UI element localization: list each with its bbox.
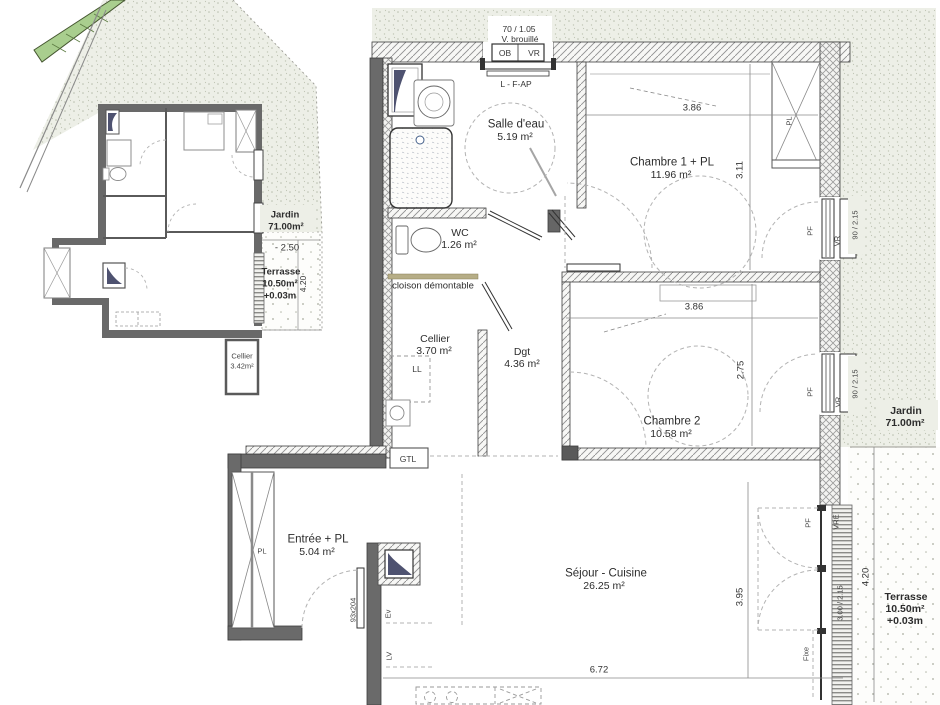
top-window-ob: OB (499, 49, 511, 58)
site-apartment-walls (52, 104, 262, 338)
site-jardin-area: 71.00m² (268, 222, 303, 232)
exterior-terrasse-area: 10.50m² (885, 604, 924, 615)
dishwasher-label: LV (385, 652, 393, 661)
door-size-label: 93x204 (349, 598, 357, 623)
room-label-wc: WC (451, 228, 469, 239)
dim-sejour-depth: 3.95 (735, 588, 745, 607)
win2-dim-label: 90 / 2.15 (851, 369, 859, 398)
kitchen-units (416, 687, 541, 704)
cloison-demontable-label: cloison démontable (392, 281, 474, 291)
ll-zone (390, 356, 430, 402)
main-plan (228, 8, 940, 705)
win2-pf-label: PF (806, 387, 814, 397)
site-jardin-name: Jardin (271, 210, 300, 220)
dim-chambre2-width: 3.86 (685, 302, 704, 312)
floor-plan-drawing (0, 0, 940, 705)
site-level-dim: - 2.50 (275, 243, 299, 253)
room-label-salle-eau: Salle d'eau (488, 119, 545, 131)
exterior-terrasse-name: Terrasse (884, 592, 927, 603)
site-cellier-area: 3.42m² (230, 362, 253, 370)
bay-vre-label: VRE (832, 514, 840, 529)
room-label-sejour: Séjour - Cuisine (565, 568, 647, 580)
dim-chambre1-width: 3.86 (683, 103, 702, 113)
room-label-cellier: Cellier (420, 334, 450, 345)
room-area-chambre2: 10.58 m² (650, 429, 691, 440)
closet-label-entree: PL (257, 547, 266, 555)
exterior-jardin-area: 71.00m² (885, 418, 924, 429)
top-window-vr: VR (528, 49, 540, 58)
bay-dim-label: 3.00 / 2.15 (836, 585, 844, 620)
washer-label: LL (412, 365, 421, 374)
site-plan (20, 0, 322, 394)
wc-tank (396, 226, 408, 254)
fixe-label: Fixe (802, 647, 810, 661)
site-terrasse-name: Terrasse (262, 267, 301, 277)
win2-vr-label: VR (834, 397, 842, 407)
exterior-terrasse-level: +0.03m (887, 616, 923, 627)
top-window-under: L - F-AP (500, 80, 531, 89)
dim-chambre1-depth: 3.11 (735, 161, 745, 179)
walls (228, 42, 850, 705)
site-terrasse-level: +0.03m (264, 291, 297, 301)
room-area-cellier: 3.70 m² (416, 346, 452, 357)
dim-sejour-width: 6.72 (590, 665, 609, 675)
win1-dim-label: 90 / 2.15 (851, 210, 859, 239)
fixtures (232, 62, 820, 704)
washbasin (418, 86, 450, 118)
room-area-dgt: 4.36 m² (504, 359, 540, 370)
dim-chambre2-depth: 2.75 (736, 361, 746, 380)
gtl-label: GTL (400, 455, 417, 464)
wc-toilet (411, 228, 441, 252)
sink-label: Ev (384, 610, 392, 619)
floor-plan-canvas: Jardin 71.00m² - 2.50 Terrasse 10.50m² +… (0, 0, 940, 705)
room-area-salle-eau: 5.19 m² (497, 132, 533, 143)
room-area-chambre1: 11.96 m² (651, 170, 692, 181)
site-terrasse-area: 10.50m² (262, 279, 297, 289)
top-window-dim: 70 / 1.05 (502, 25, 535, 34)
site-cellier-name: Cellier (231, 352, 252, 360)
room-area-wc: 1.26 m² (441, 240, 477, 251)
room-label-chambre1: Chambre 1 + PL (630, 157, 714, 169)
cloison-demontable-wall (388, 274, 478, 279)
room-area-sejour: 26.25 m² (583, 581, 624, 592)
room-area-entree: 5.04 m² (299, 547, 335, 558)
room-label-entree: Entrée + PL (287, 534, 348, 546)
bay-pf-label: PF (804, 518, 812, 528)
win1-vr-label: VR (833, 236, 841, 246)
exterior-jardin-name: Jardin (890, 406, 922, 417)
room-label-chambre2: Chambre 2 (644, 416, 701, 428)
closet-label-chambre1: PL (785, 116, 793, 125)
exterior-terrasse-dim: 4.20 (861, 568, 871, 587)
room-label-dgt: Dgt (514, 347, 530, 358)
site-terrasse-dim: 4.20 (299, 276, 308, 293)
top-window-note: V. brouillé (501, 35, 538, 44)
win1-pf-label: PF (806, 226, 814, 236)
